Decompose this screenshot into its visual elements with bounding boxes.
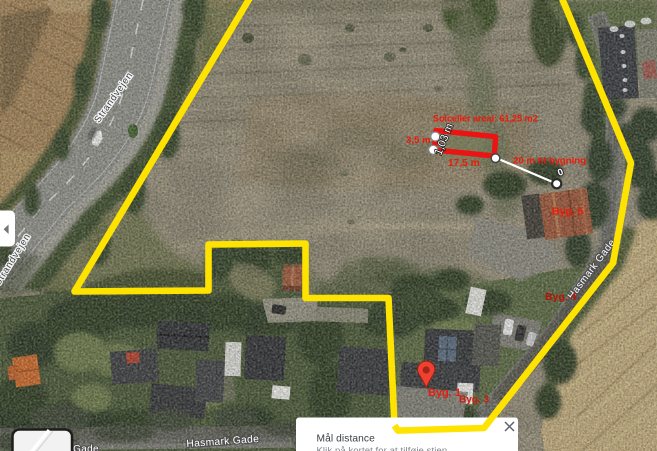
- svg-text:Byg. 4: Byg. 4: [545, 291, 577, 303]
- svg-text:Byg. 1: Byg. 1: [428, 387, 461, 399]
- svg-text:Mål distance: Mål distance: [317, 433, 376, 445]
- svg-text:Byg. 3: Byg. 3: [459, 395, 489, 406]
- svg-text:Gade: Gade: [73, 444, 99, 451]
- svg-text:Klik på kortet for at tilføje: Klik på kortet for at tilføje stien: [317, 446, 448, 451]
- svg-text:17,5 m: 17,5 m: [448, 158, 480, 169]
- svg-text:Byg. 5: Byg. 5: [552, 206, 584, 218]
- svg-text:3,5 m: 3,5 m: [406, 135, 431, 146]
- svg-text:Solceller areal: 61,25 m2: Solceller areal: 61,25 m2: [433, 114, 538, 124]
- svg-text:20 m til bygning: 20 m til bygning: [513, 156, 586, 167]
